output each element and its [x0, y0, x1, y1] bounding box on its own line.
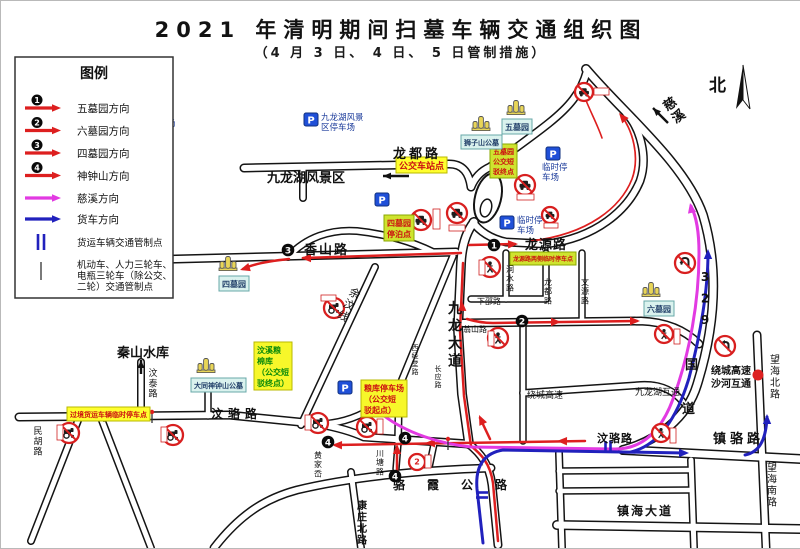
svg-text:停泊点: 停泊点: [387, 229, 411, 239]
road-label: 329: [701, 270, 709, 327]
svg-text:1: 1: [34, 96, 40, 105]
svg-text:四墓园: 四墓园: [222, 279, 246, 289]
map-label-box: 六墓园: [644, 301, 674, 316]
svg-text:4: 4: [402, 434, 408, 444]
road-label: 黄家岙: [314, 450, 322, 478]
route-number-badge: 4: [322, 436, 335, 449]
legend: 图例1五墓园方向2六墓园方向3四墓园方向4神钟山方向慈溪方向货车方向货运车辆交通…: [15, 57, 173, 298]
svg-text:六墓园: 六墓园: [647, 304, 671, 314]
mini-label-box: [433, 209, 440, 229]
svg-text:棉库: 棉库: [257, 356, 273, 366]
cemetery-icon: [507, 101, 525, 115]
parking-label: 临时停: [517, 215, 543, 226]
route-number-badge: 3: [282, 244, 295, 257]
svg-text:2: 2: [519, 317, 525, 327]
route-red-top-dash: [585, 98, 602, 138]
map-canvas: P党校停车场P九龙湖风景区停车场P临时停车场P临时停车场PP2公交车站点四墓园停…: [1, 1, 800, 548]
route-number-badge: 1: [488, 239, 501, 252]
compass: [736, 65, 750, 109]
compass-needle: [736, 65, 743, 109]
route-number-badge: 2: [516, 315, 529, 328]
legend-title: 图例: [80, 65, 108, 82]
svg-text:粮库停车场: 粮库停车场: [364, 383, 404, 393]
svg-text:龙源路两侧临时停车点: 龙源路两侧临时停车点: [513, 255, 573, 263]
mini-label-box: [670, 428, 676, 443]
svg-text:四墓园: 四墓园: [387, 218, 411, 228]
road-label: 沙河互通: [711, 378, 751, 390]
legend-item-label: 神钟山方向: [77, 170, 130, 183]
mini-label-box: [161, 427, 167, 442]
parking-icon: P: [338, 381, 352, 395]
svg-text:大同神钟山公墓: 大同神钟山公墓: [194, 381, 244, 390]
traffic-map-figure: P党校停车场P九龙湖风景区停车场P临时停车场P临时停车场PP2公交车站点四墓园停…: [0, 0, 800, 549]
mini-label-box: [377, 419, 383, 434]
no-noleft-sign: [715, 336, 735, 356]
parking-icon: P临时停车场: [500, 215, 543, 236]
road-label: 九龙湖互通: [635, 386, 680, 398]
no-car-sign: [447, 203, 467, 223]
road-label: 九龙大道: [447, 301, 462, 370]
svg-text:驳起点）: 驳起点）: [364, 405, 396, 415]
map-label-box: 五墓园: [502, 119, 532, 134]
road-label: 国: [685, 358, 698, 373]
road-label: 洞水路: [506, 264, 514, 292]
svg-text:3: 3: [34, 141, 40, 150]
map-label-box: 龙源路两侧临时停车点: [510, 252, 576, 265]
road-label: 绕城高速: [711, 364, 751, 377]
road-label: 民胡路: [33, 426, 42, 458]
mini-label-box: [544, 223, 558, 228]
mini-label-box: [57, 425, 63, 440]
no-tractor-sign: [357, 417, 377, 437]
road-label: 下邵路: [477, 296, 501, 306]
cemetery-icon: [197, 359, 215, 373]
map-label-box: 四墓园: [219, 276, 249, 291]
parking-label: 车场: [517, 225, 534, 236]
no-nou-sign: [675, 253, 695, 273]
mini-label-box: [425, 455, 431, 468]
svg-text:过境货运车辆临时停车点: 过境货运车辆临时停车点: [70, 410, 147, 419]
road-label: 道: [682, 401, 695, 417]
parking-label: 车场: [542, 172, 559, 183]
svg-text:驳终点）: 驳终点）: [257, 378, 289, 388]
svg-text:1: 1: [491, 241, 497, 251]
svg-text:P: P: [378, 196, 385, 207]
svg-text:驳终点: 驳终点: [493, 167, 514, 176]
road-label: 翁山路: [463, 324, 487, 334]
no-pedestrian-sign: [652, 424, 670, 442]
svg-text:4: 4: [34, 164, 40, 173]
cemetery-icon: [472, 117, 490, 131]
mini-label-box: [674, 329, 680, 344]
road-label: 慈溪: [660, 94, 689, 127]
map-label-box: 过境货运车辆临时停车点: [67, 407, 150, 421]
svg-text:狮子山公墓: 狮子山公墓: [463, 138, 500, 147]
svg-text:4: 4: [325, 438, 331, 448]
parking-label: 区停车场: [321, 122, 355, 133]
svg-text:五墓园: 五墓园: [505, 122, 529, 132]
parking-icon: P九龙湖风景区停车场: [304, 112, 364, 133]
map-label-box: 粮库停车场（公交短驳起点）: [361, 380, 407, 417]
svg-text:2: 2: [414, 458, 420, 467]
svg-text:P: P: [307, 116, 314, 127]
legend-item-label: 机动车、人力三轮车、: [77, 259, 172, 271]
map-label-box: 大同神钟山公墓: [191, 378, 246, 392]
parking-label: 临时停: [542, 162, 568, 173]
svg-text:P: P: [549, 150, 556, 161]
page-title: 2021 年清明期间扫墓车辆交通组织图: [1, 14, 800, 44]
mini-label-box: [517, 194, 534, 200]
mini-label-box: [594, 88, 609, 95]
road-label: 九龙湖风景区: [266, 170, 345, 186]
route-junction-up: [475, 413, 490, 439]
road-label: 文源路: [581, 277, 589, 305]
road-label: 龙都路: [544, 277, 552, 305]
svg-text:2: 2: [34, 119, 40, 128]
road-label: 龙源路: [525, 237, 567, 253]
road-label: 川塘路: [376, 449, 384, 476]
no-car-sign: [515, 175, 535, 195]
road-label: 康庄北路: [357, 499, 368, 547]
no-pedestrian-sign: [655, 325, 673, 343]
svg-text:3: 3: [285, 246, 291, 256]
road-label: 绕城高速: [527, 389, 563, 401]
road-label: 长应路: [435, 364, 442, 389]
no-num2-sign: 2: [409, 454, 425, 470]
svg-text:P: P: [341, 384, 348, 395]
legend-item-label: 五墓园方向: [77, 102, 130, 115]
road-label: 汶骆路: [597, 431, 633, 445]
parking-icon: P临时停车场: [542, 147, 568, 183]
no-car-sign: [542, 207, 558, 223]
mini-label-box: [305, 415, 311, 430]
legend-item-label: 慈溪方向: [77, 192, 119, 205]
road-label: 香山路: [303, 242, 349, 258]
mini-label-box: [449, 225, 465, 231]
svg-text:（公交短: （公交短: [364, 394, 396, 404]
road-label: 汶泰路: [148, 367, 157, 400]
svg-text:公交短: 公交短: [493, 157, 514, 166]
no-car-sign: [575, 83, 593, 101]
cemetery-icon: [642, 283, 660, 297]
map-label-box: 汶溪粮棉库（公交短驳终点）: [254, 342, 292, 390]
svg-text:4: 4: [392, 472, 398, 482]
hub-dot: [753, 370, 764, 381]
route-number-badge: 4: [389, 470, 402, 483]
mini-label-box: [479, 260, 485, 275]
parking-icon: P: [375, 193, 389, 207]
road-label: 汶骆路: [211, 406, 262, 421]
legend-item-label: 六墓园方向: [77, 125, 130, 138]
parking-label: 九龙湖风景: [321, 112, 364, 123]
map-label-box: 四墓园停泊点: [384, 215, 414, 241]
legend-item-label: 货车方向: [77, 213, 119, 226]
legend-item-label: 二轮）交通管制点: [77, 281, 154, 293]
road-label: 骆霞公路: [393, 477, 529, 492]
mini-label-box: [321, 295, 336, 301]
page-subtitle: （4 月 3 日、 4 日、 5 日管制措施）: [1, 42, 800, 61]
legend-item-label: 四墓园方向: [77, 147, 130, 160]
road-label: 镇海大道: [617, 503, 673, 518]
road-label: 西经堂路: [412, 344, 419, 376]
road-label: 北: [709, 76, 726, 96]
road-label: 望海北路: [770, 353, 780, 401]
svg-text:汶溪粮: 汶溪粮: [257, 345, 281, 355]
road-label: 秦山水库: [116, 345, 169, 361]
svg-text:P: P: [503, 219, 510, 230]
legend-item-label: 电瓶三轮车（除公交、: [77, 270, 172, 282]
road-label: 龙都路: [393, 146, 441, 162]
cemetery-icons: [197, 101, 660, 373]
road-label: 镇骆路: [713, 431, 764, 447]
legend-item-label: 货运车辆交通管制点: [77, 237, 163, 249]
mini-label-box: [488, 331, 494, 346]
map-label-box: 狮子山公墓: [461, 135, 502, 149]
road-label: 望海南路: [767, 461, 777, 509]
route-number-badge: 4: [399, 432, 412, 445]
svg-text:（公交短: （公交短: [257, 367, 289, 377]
